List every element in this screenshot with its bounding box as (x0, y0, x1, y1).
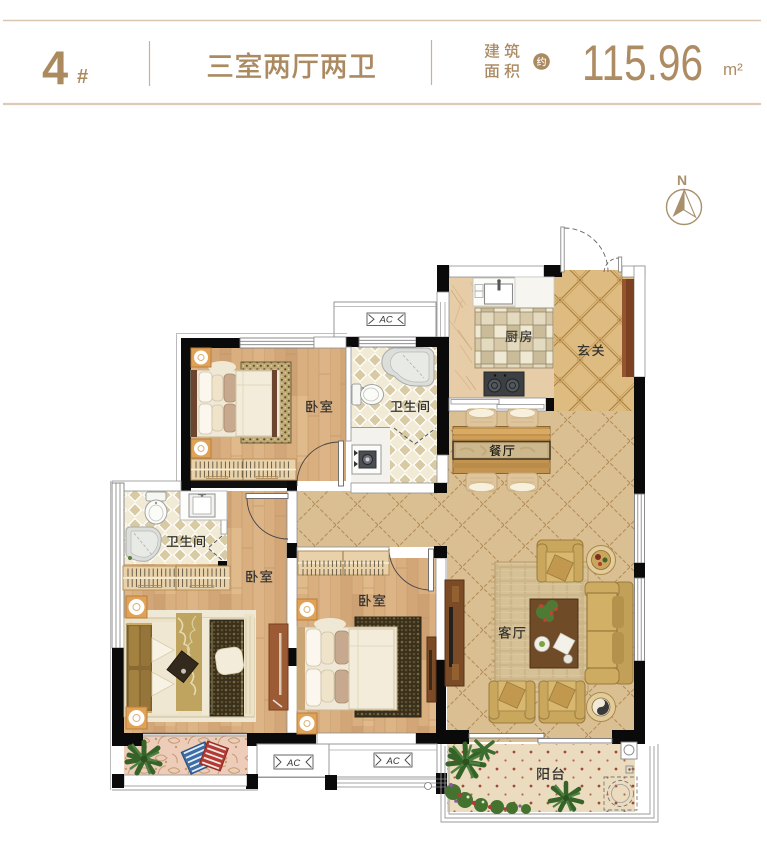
svg-text:#: # (77, 66, 88, 88)
svg-text:N: N (677, 172, 687, 188)
svg-text:115.96: 115.96 (582, 35, 703, 91)
svg-text:m²: m² (723, 60, 743, 79)
svg-text:AC: AC (379, 315, 393, 326)
svg-text:4: 4 (42, 41, 68, 94)
svg-text:AC: AC (386, 756, 400, 767)
svg-text:AC: AC (286, 758, 300, 769)
